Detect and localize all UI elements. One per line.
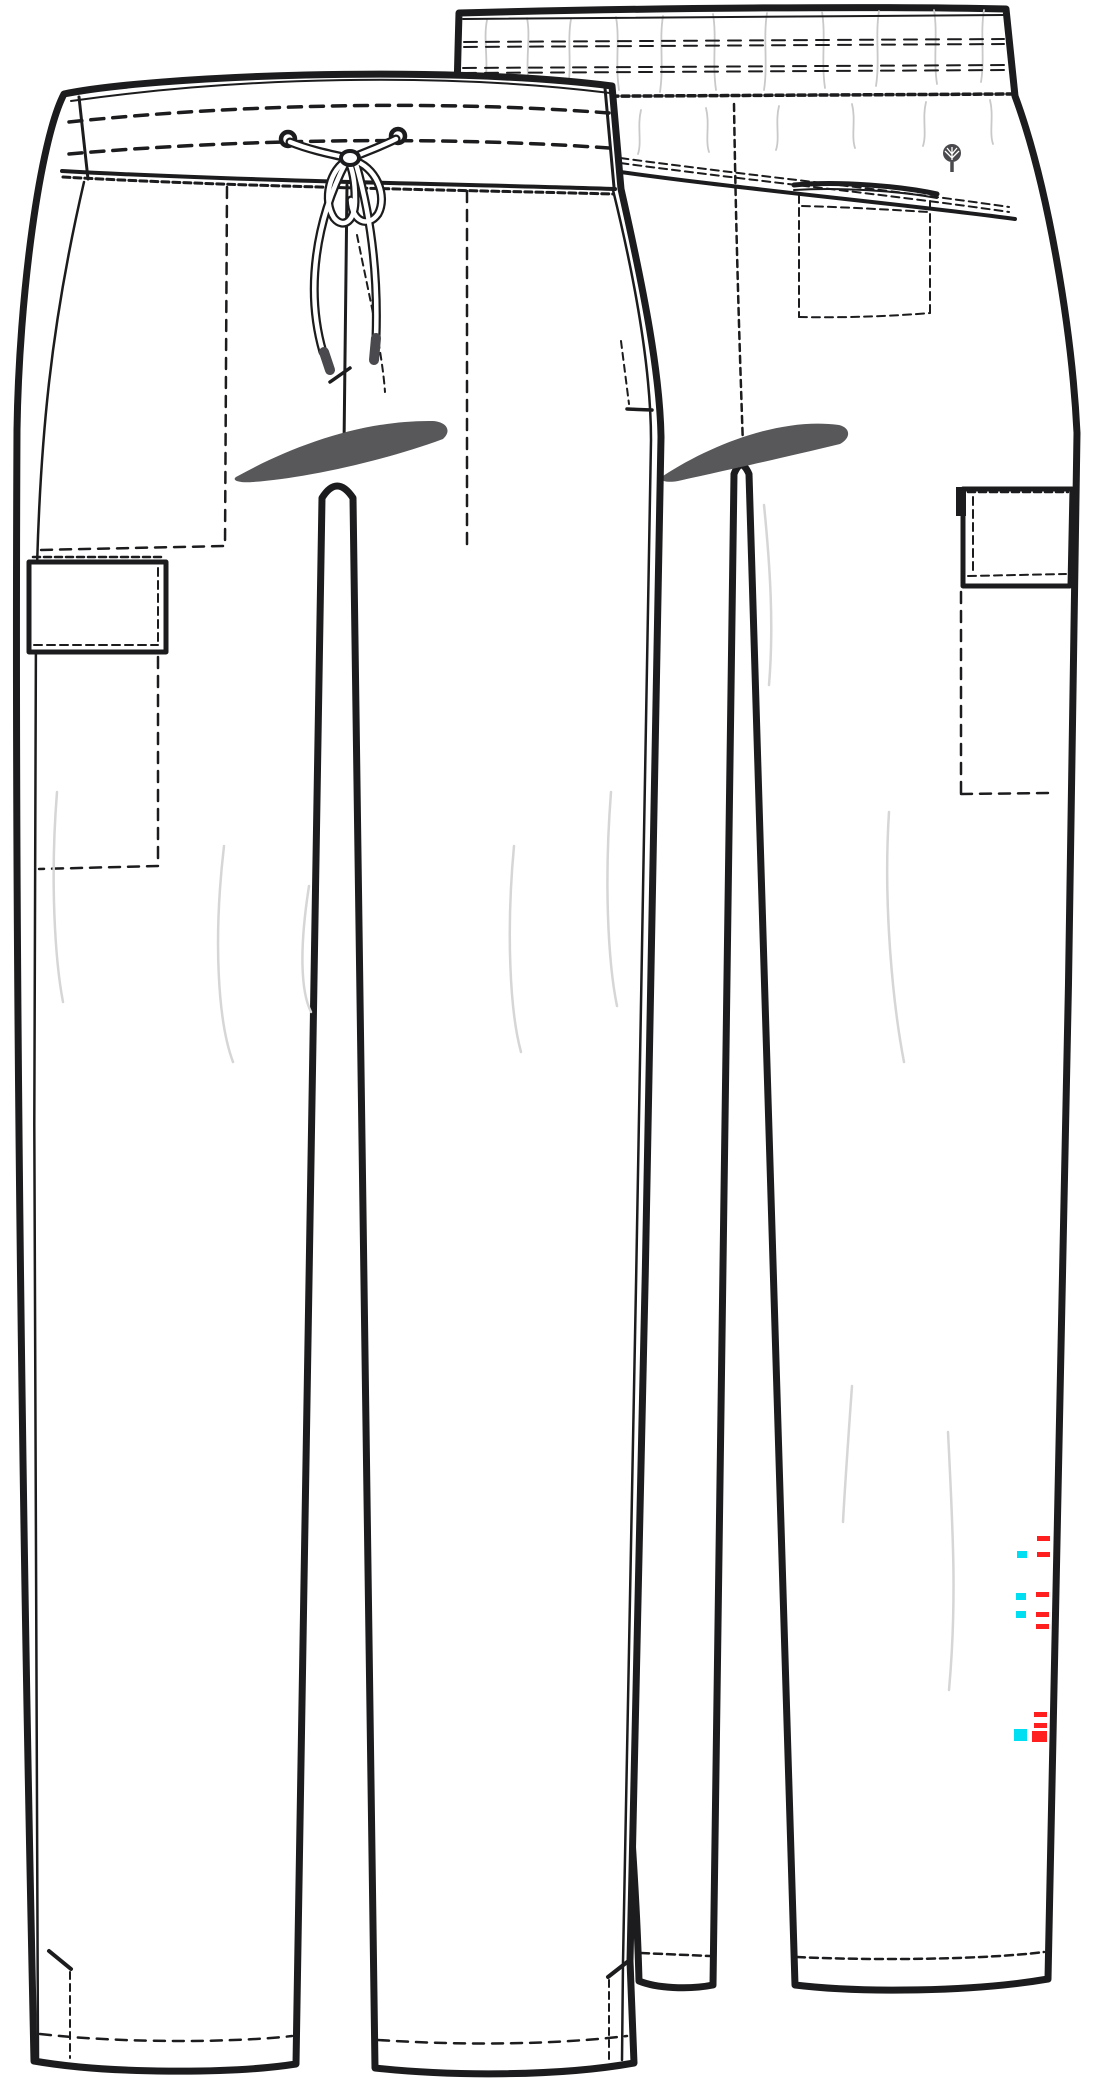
drawstring-knot [341,151,359,165]
cyan-grading-mark [1016,1593,1026,1600]
sketch-canvas [0,0,1100,2100]
red-grading-mark [1032,1731,1047,1742]
cyan-grading-mark [1017,1551,1027,1558]
aglet-left [324,352,330,370]
cyan-grading-mark [1014,1729,1027,1741]
red-grading-mark [1037,1552,1050,1557]
red-grading-mark [1036,1624,1049,1629]
red-grading-mark [1037,1536,1050,1541]
red-grading-mark [1036,1612,1049,1617]
red-grading-mark [1034,1723,1047,1728]
cyan-grading-mark [1016,1611,1026,1618]
flat-sketch [0,0,1100,2100]
red-grading-mark [1036,1592,1049,1597]
red-grading-mark [1034,1712,1047,1717]
aglet-right [374,338,376,360]
front-view [16,74,661,2074]
